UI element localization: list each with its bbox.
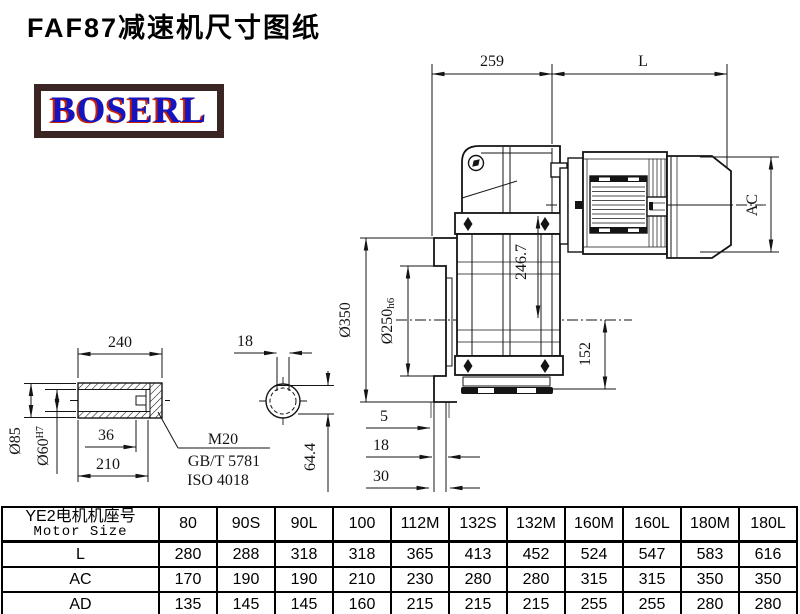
- dim-label-spigot-dia: Ø250h6: [379, 297, 397, 344]
- table-cell: 365: [391, 542, 449, 568]
- table-row: AD135145145160215215215255255280280: [2, 592, 797, 614]
- drawing-page: FAF87减速机尺寸图纸 BOSERL: [0, 0, 800, 614]
- dim-label-64-4: 64.4: [302, 443, 319, 471]
- dim-label-210: 210: [96, 456, 120, 473]
- table-cell: 135: [159, 592, 217, 614]
- table-cell: 547: [623, 542, 681, 568]
- table-row-label: L: [2, 542, 159, 568]
- table-cell: 318: [333, 542, 391, 568]
- table-col-header: 132M: [507, 507, 565, 542]
- note-iso-4018: ISO 4018: [187, 472, 249, 489]
- table-cell: 288: [217, 542, 275, 568]
- table-cell: 230: [391, 567, 449, 592]
- dim-label-AC: AC: [744, 194, 761, 216]
- table-cell: 452: [507, 542, 565, 568]
- table-cell: 318: [275, 542, 333, 568]
- dim-label-L: L: [638, 53, 648, 70]
- table-cell: 145: [217, 592, 275, 614]
- table-cell: 280: [449, 567, 507, 592]
- table-col-header: 100: [333, 507, 391, 542]
- table-cell: 280: [739, 592, 797, 614]
- table-cell: 255: [565, 592, 623, 614]
- table-cell: 280: [159, 542, 217, 568]
- note-gbt-5781: GB/T 5781: [188, 453, 260, 470]
- table-cell: 583: [681, 542, 739, 568]
- table-col-header: 132S: [449, 507, 507, 542]
- table-cell: 350: [681, 567, 739, 592]
- table-cell: 215: [391, 592, 449, 614]
- table-row: L280288318318365413452524547583616: [2, 542, 797, 568]
- table-cell: 315: [565, 567, 623, 592]
- table-col-header: 80: [159, 507, 217, 542]
- table-header-cn: YE2电机机座号: [3, 508, 158, 525]
- table-cell: 616: [739, 542, 797, 568]
- table-cell: 350: [739, 567, 797, 592]
- table-header-row: YE2电机机座号 Motor Size 8090S90L100112M132S1…: [2, 507, 797, 542]
- table-cell: 160: [333, 592, 391, 614]
- motor-size-table: YE2电机机座号 Motor Size 8090S90L100112M132S1…: [1, 506, 798, 614]
- table-col-header: 180M: [681, 507, 739, 542]
- table-cell: 210: [333, 567, 391, 592]
- table-cell: 170: [159, 567, 217, 592]
- table-cell: 524: [565, 542, 623, 568]
- main-view: 259 L AC 246.7 152 Ø350 Ø250h6 5 18: [337, 53, 779, 492]
- dim-label-240: 240: [108, 334, 132, 351]
- table-cell: 215: [507, 592, 565, 614]
- table-cell: 145: [275, 592, 333, 614]
- table-header-en: Motor Size: [3, 525, 158, 540]
- dim-label-18: 18: [373, 437, 389, 454]
- dim-label-85: Ø85: [7, 427, 24, 455]
- table-col-header: 90S: [217, 507, 275, 542]
- table-col-header: 90L: [275, 507, 333, 542]
- shaft-detail-view: 240 Ø85 Ø60H7 36 210 M20 GB/T 5781: [7, 334, 270, 489]
- dim-label-flange-dia: Ø350: [337, 302, 354, 338]
- dim-label-keyway-18: 18: [237, 333, 253, 350]
- dim-label-246-7: 246.7: [513, 244, 530, 280]
- table-cell: 413: [449, 542, 507, 568]
- dim-label-60: Ø60H7: [35, 426, 52, 466]
- table-cell: 215: [449, 592, 507, 614]
- dim-label-5: 5: [380, 408, 388, 425]
- table-cell: 315: [623, 567, 681, 592]
- table-row-label: AC: [2, 567, 159, 592]
- table-cell: 190: [275, 567, 333, 592]
- table-cell: 280: [681, 592, 739, 614]
- bolt-hole-icon: [469, 156, 484, 171]
- table-cell: 280: [507, 567, 565, 592]
- dim-label-30: 30: [373, 468, 389, 485]
- table-col-header: 160L: [623, 507, 681, 542]
- table-col-header: 160M: [565, 507, 623, 542]
- table-cell: 255: [623, 592, 681, 614]
- table-row: AC170190190210230280280315315350350: [2, 567, 797, 592]
- table-header-motor-size: YE2电机机座号 Motor Size: [2, 507, 159, 542]
- table-col-header: 112M: [391, 507, 449, 542]
- dim-label-36: 36: [98, 427, 114, 444]
- table-col-header: 180L: [739, 507, 797, 542]
- table-row-label: AD: [2, 592, 159, 614]
- note-m20: M20: [208, 431, 238, 448]
- table-cell: 190: [217, 567, 275, 592]
- dim-label-259: 259: [480, 53, 504, 70]
- dim-label-152: 152: [577, 342, 594, 366]
